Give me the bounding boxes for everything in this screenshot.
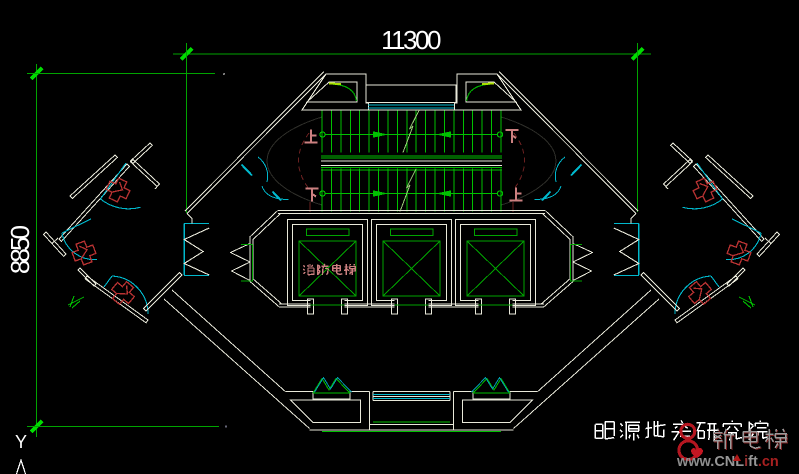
svg-text:11300: 11300 [381,25,441,55]
svg-text:www.CNLift.cn: www.CNLift.cn [676,454,779,470]
svg-text:Y: Y [15,432,27,452]
svg-text:8850: 8850 [5,225,35,274]
